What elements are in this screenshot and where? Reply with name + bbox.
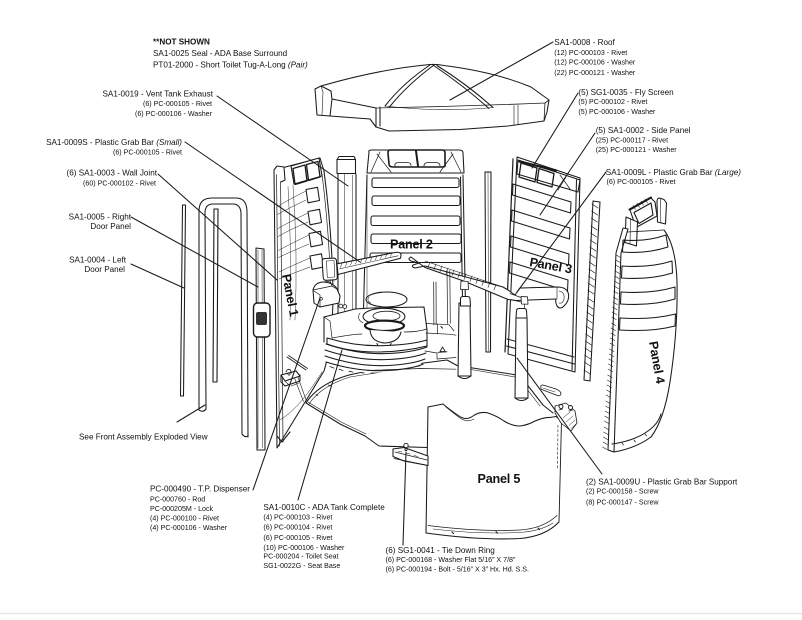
svg-text:Door Panel: Door Panel bbox=[84, 265, 125, 274]
svg-text:(6) PC-000168 - Washer Flat 5/: (6) PC-000168 - Washer Flat 5/16” X 7/8” bbox=[386, 556, 516, 564]
svg-text:SA1-0009L - Plastic Grab Bar (: SA1-0009L - Plastic Grab Bar (Large) bbox=[606, 168, 741, 177]
svg-text:(6) PC-000105 - Rivet: (6) PC-000105 - Rivet bbox=[143, 100, 212, 108]
svg-text:(4) PC-000106 - Washer: (4) PC-000106 - Washer bbox=[150, 524, 228, 532]
svg-text:SA1-0009S - Plastic Grab Bar (: SA1-0009S - Plastic Grab Bar (Small) bbox=[46, 138, 182, 147]
svg-text:(6) PC-000106 - Washer: (6) PC-000106 - Washer bbox=[135, 110, 213, 118]
svg-text:Panel 5: Panel 5 bbox=[478, 472, 521, 486]
svg-text:PT01-2000 - Short Toilet Tug-A: PT01-2000 - Short Toilet Tug-A-Long (Pai… bbox=[153, 61, 308, 70]
svg-text:(5) PC-000106 - Washer: (5) PC-000106 - Washer bbox=[578, 108, 656, 116]
svg-text:(6) SA1-0003 - Wall Joint: (6) SA1-0003 - Wall Joint bbox=[67, 169, 158, 178]
svg-text:PC-000204 - Toilet Seat: PC-000204 - Toilet Seat bbox=[263, 553, 338, 561]
svg-text:(25) PC-000117 - Rivet: (25) PC-000117 - Rivet bbox=[596, 137, 668, 145]
svg-text:**NOT SHOWN: **NOT SHOWN bbox=[153, 38, 210, 47]
svg-text:PC-000760 - Rod: PC-000760 - Rod bbox=[150, 495, 205, 503]
svg-text:(6) SG1-0041 - Tie Down Ring: (6) SG1-0041 - Tie Down Ring bbox=[386, 546, 495, 555]
svg-text:PC-000490 - T.P. Dispenser: PC-000490 - T.P. Dispenser bbox=[150, 485, 250, 494]
svg-text:(6) PC-000105 - Rivet: (6) PC-000105 - Rivet bbox=[113, 149, 182, 157]
svg-text:(12) PC-000103 - Rivet: (12) PC-000103 - Rivet bbox=[554, 49, 627, 57]
svg-text:SA1-0008 - Roof: SA1-0008 - Roof bbox=[554, 38, 615, 47]
svg-text:(8) PC-000147 - Screw: (8) PC-000147 - Screw bbox=[586, 498, 659, 506]
svg-text:Panel 2: Panel 2 bbox=[390, 238, 433, 252]
svg-text:(22) PC-000121 - Washer: (22) PC-000121 - Washer bbox=[554, 69, 636, 77]
svg-text:(12) PC-000106 - Washer: (12) PC-000106 - Washer bbox=[554, 59, 636, 67]
svg-text:(6) PC-000194 - Bolt - 5/16” X: (6) PC-000194 - Bolt - 5/16” X 3” Hx. Hd… bbox=[386, 565, 530, 573]
svg-text:(10) PC-000106 - Washer: (10) PC-000106 - Washer bbox=[263, 544, 345, 552]
svg-text:SA1-0019 - Vent Tank Exhaust: SA1-0019 - Vent Tank Exhaust bbox=[102, 90, 213, 99]
svg-text:SA1-0025 Seal - ADA Base Surr: SA1-0025 Seal - ADA Base Surround bbox=[153, 49, 287, 58]
svg-text:(5) SG1-0035 - Fly Screen: (5) SG1-0035 - Fly Screen bbox=[578, 88, 673, 97]
svg-text:SA1-0005 - Right: SA1-0005 - Right bbox=[69, 212, 132, 221]
svg-text:(2) PC-000158 - Screw: (2) PC-000158 - Screw bbox=[586, 488, 659, 496]
svg-text:(6) PC-000105 - Rivet: (6) PC-000105 - Rivet bbox=[607, 178, 676, 186]
svg-text:Door Panel: Door Panel bbox=[90, 222, 131, 231]
svg-text:(4) PC-000100 - Rivet: (4) PC-000100 - Rivet bbox=[150, 515, 219, 523]
svg-text:(25) PC-000121 - Washer: (25) PC-000121 - Washer bbox=[596, 146, 678, 154]
svg-text:(4) PC-000103 - Rivet: (4) PC-000103 - Rivet bbox=[263, 513, 332, 521]
svg-text:SG1-0022G - Seat Base: SG1-0022G - Seat Base bbox=[263, 562, 340, 570]
svg-text:PC-000205M - Lock: PC-000205M - Lock bbox=[150, 505, 214, 513]
svg-text:(60) PC-000102 - Rivet: (60) PC-000102 - Rivet bbox=[83, 180, 156, 188]
svg-text:(5) SA1-0002 - Side Panel: (5) SA1-0002 - Side Panel bbox=[596, 126, 691, 135]
svg-text:SA1-0010C - ADA Tank Complete: SA1-0010C - ADA Tank Complete bbox=[263, 503, 385, 512]
svg-text:SA1-0004 - Left: SA1-0004 - Left bbox=[69, 255, 127, 264]
svg-text:See Front Assembly Exploded Vi: See Front Assembly Exploded View bbox=[79, 433, 208, 442]
svg-text:(2) SA1-0009U - Plastic Grab B: (2) SA1-0009U - Plastic Grab Bar Support bbox=[586, 477, 738, 486]
svg-text:(6) PC-000104 - Rivet: (6) PC-000104 - Rivet bbox=[263, 524, 332, 532]
svg-text:(5) PC-000102 - Rivet: (5) PC-000102 - Rivet bbox=[578, 98, 647, 106]
svg-text:(6) PC-000105 - Rivet: (6) PC-000105 - Rivet bbox=[263, 534, 332, 542]
